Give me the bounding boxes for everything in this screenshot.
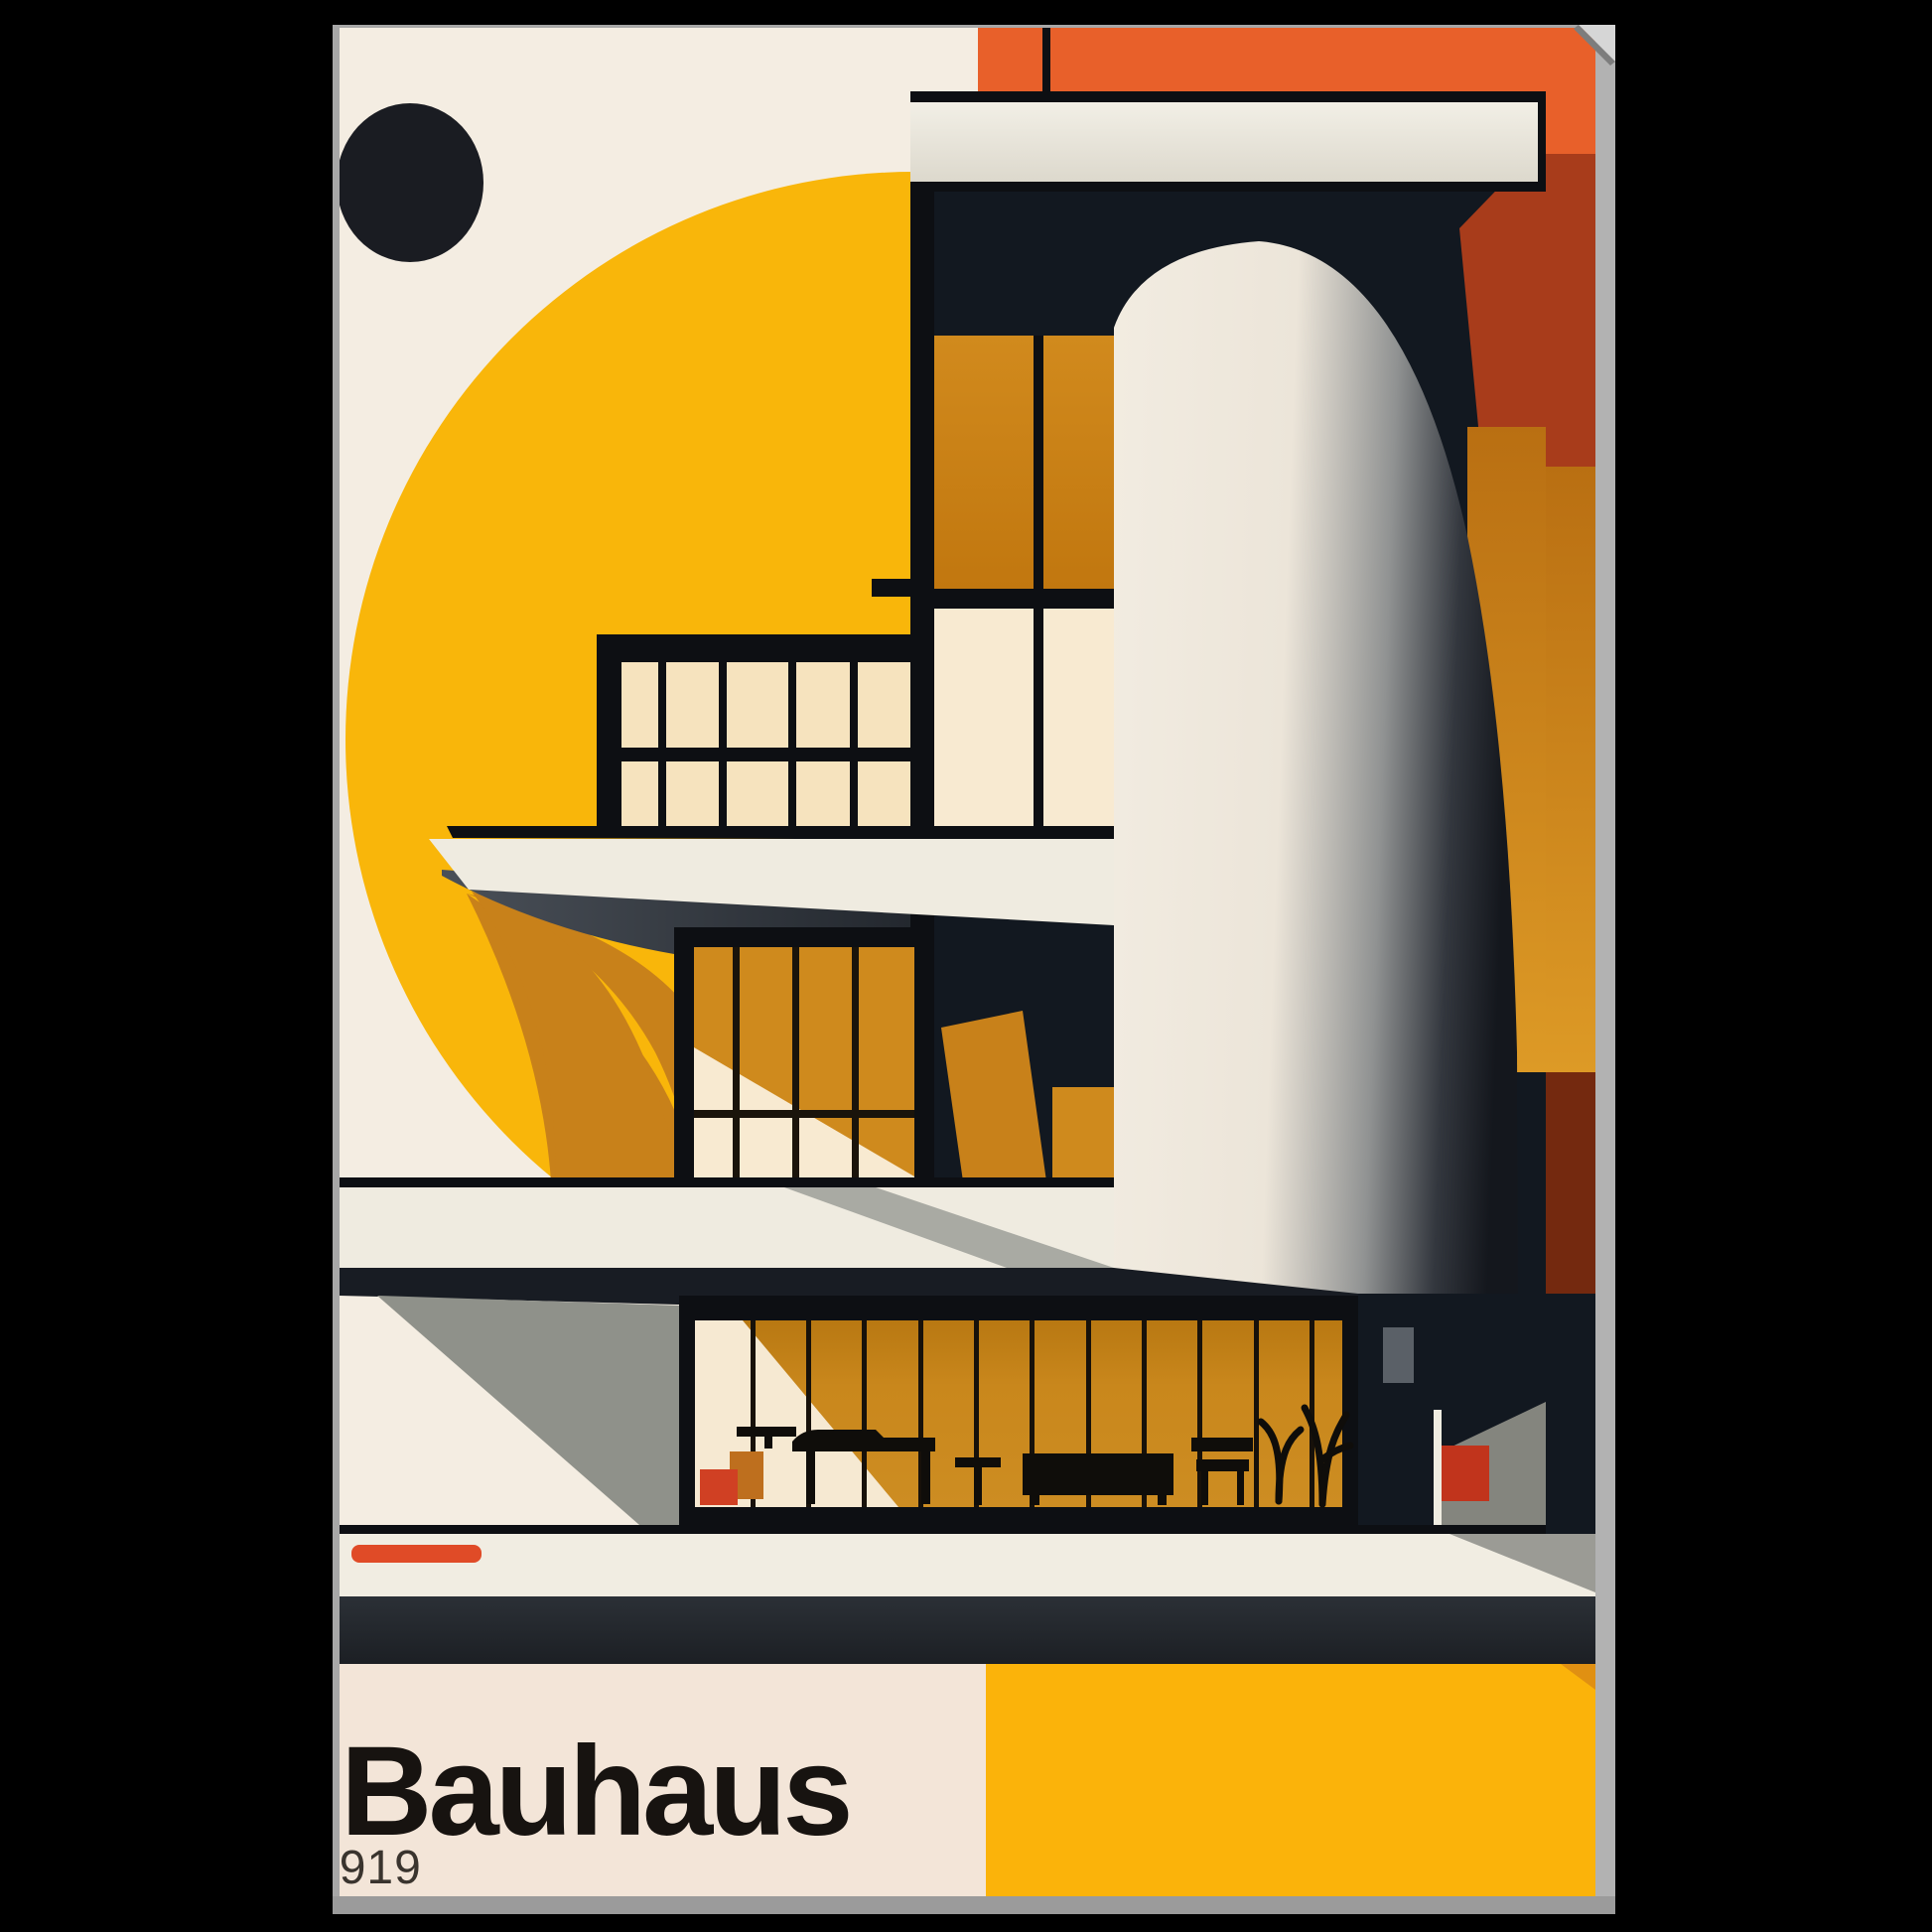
- sideboard-leg: [1158, 1493, 1167, 1505]
- bar-tick: [872, 579, 910, 597]
- mid-side-pane: [1052, 1087, 1114, 1181]
- poster-frame-bottom-edge: [333, 1896, 1615, 1914]
- red-block: [1438, 1446, 1489, 1501]
- right-column-orange: [1546, 96, 1595, 159]
- right-column-maroon-lower: [1546, 1072, 1595, 1301]
- red-accent-bar: [351, 1545, 482, 1563]
- gray-highlight-panel: [1383, 1327, 1414, 1383]
- window-column-black-band: [934, 589, 1114, 609]
- beam-right-edge: [1538, 91, 1546, 192]
- beam-bottom-line: [910, 182, 1546, 192]
- poster-year: 1919: [312, 1842, 422, 1894]
- beam-top-line: [910, 91, 1546, 103]
- poster-frame-right-edge: [1595, 25, 1615, 1914]
- poster-mockup-scene: Bauhaus 1919: [0, 0, 1932, 1932]
- right-column-maroon: [1546, 154, 1595, 467]
- chair-leg: [1237, 1471, 1244, 1505]
- black-circle: [337, 103, 483, 262]
- white-sill: [340, 1534, 1595, 1596]
- piano-leg: [806, 1449, 815, 1504]
- red-floor-box: [700, 1469, 738, 1505]
- yellow-bottom-block: [986, 1664, 1595, 1896]
- sideboard-leg: [1031, 1493, 1039, 1505]
- top-beam: [910, 102, 1546, 184]
- chair-back: [1191, 1438, 1253, 1451]
- stool-leg: [974, 1467, 982, 1505]
- window-column-mullion: [1034, 336, 1043, 839]
- poster-artwork: Bauhaus 1919: [312, 28, 1595, 1896]
- sideboard: [1023, 1453, 1173, 1495]
- slab-a-top-line: [447, 826, 1114, 840]
- amber-window-columns: [934, 336, 1114, 589]
- sill-top-line: [340, 1525, 1546, 1534]
- right-column-amber: [1546, 467, 1595, 1072]
- bauhaus-poster-graphic: Bauhaus 1919: [0, 0, 1932, 1932]
- piano-leg: [921, 1449, 930, 1504]
- chair-leg: [1201, 1471, 1208, 1505]
- charcoal-band: [340, 1596, 1595, 1664]
- chair-seat: [1196, 1459, 1249, 1471]
- white-post: [1434, 1410, 1442, 1535]
- orange-top-block: [978, 28, 1595, 96]
- orange-block-divider-line: [1042, 28, 1050, 96]
- pale-window-panes: [934, 609, 1114, 839]
- stool-top: [955, 1457, 1001, 1467]
